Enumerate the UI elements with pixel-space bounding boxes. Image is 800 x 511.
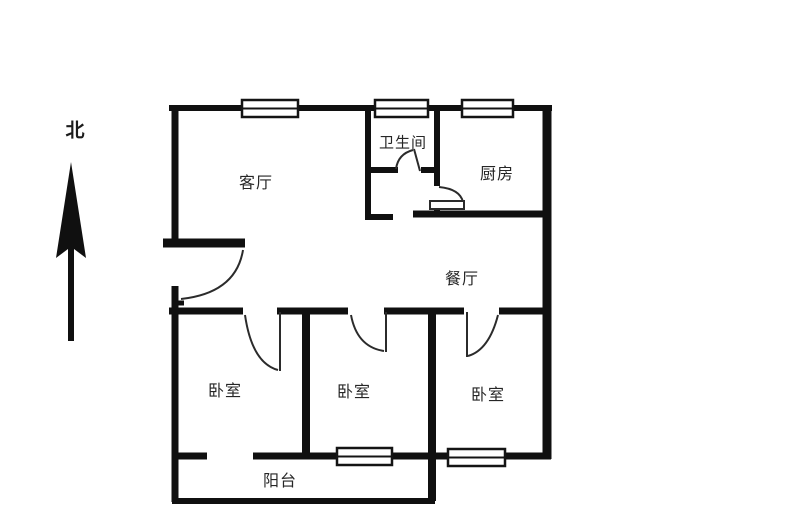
room-label-bedroom-right: 卧室 (471, 381, 505, 405)
room-label-balcony: 阳台 (263, 467, 297, 491)
kitchen-door-leaf (430, 201, 464, 209)
bedroom-middle-door-arc (351, 315, 384, 351)
north-arrow-icon (56, 162, 86, 341)
window-living-room (242, 100, 298, 117)
window-bathroom (375, 100, 428, 117)
bathroom-door-arc (396, 150, 413, 169)
entry-door-arc (181, 250, 243, 299)
room-label-bedroom-middle: 卧室 (337, 378, 371, 402)
window-bedroom-right (448, 449, 505, 466)
north-label: 北 (65, 116, 84, 143)
bedroom-right-door-arc (468, 315, 498, 356)
floor-plan-page: 北 客厅 卫生间 厨房 餐厅 卧室 卧室 卧室 阳台 (0, 0, 800, 511)
room-label-living-room: 客厅 (239, 169, 273, 193)
room-label-dining-room: 餐厅 (445, 265, 479, 289)
bedroom-left-door-arc (245, 315, 278, 370)
window-kitchen (462, 100, 513, 117)
floor-plan-drawing (0, 0, 800, 511)
doors (181, 149, 498, 371)
room-label-kitchen: 厨房 (480, 160, 514, 184)
room-label-bedroom-left: 卧室 (208, 377, 242, 401)
window-bedroom-middle (337, 448, 392, 465)
room-label-bathroom: 卫生间 (379, 132, 427, 153)
kitchen-door-arc (439, 187, 463, 202)
